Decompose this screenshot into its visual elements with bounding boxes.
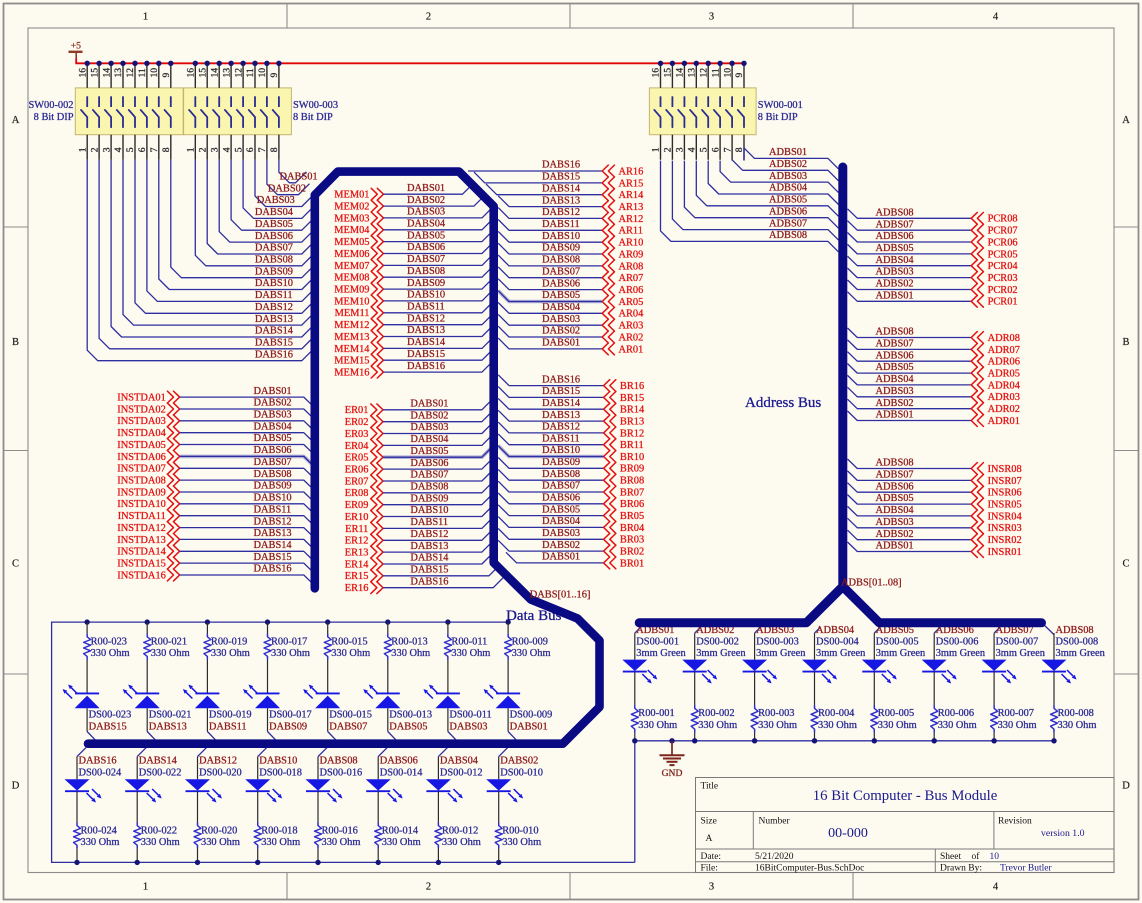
svg-text:4: 4 (687, 147, 698, 152)
svg-text:DABS04: DABS04 (254, 421, 293, 432)
svg-text:4: 4 (993, 882, 999, 893)
svg-text:ADBS01: ADBS01 (876, 410, 914, 421)
svg-text:16BitComputer-Bus.SchDoc: 16BitComputer-Bus.SchDoc (755, 863, 864, 873)
svg-text:330 Ohm: 330 Ohm (502, 837, 541, 848)
svg-text:ER11: ER11 (345, 524, 368, 535)
svg-text:R00-010: R00-010 (502, 825, 538, 836)
svg-text:DABS02: DABS02 (268, 183, 306, 194)
svg-text:INSTDA06: INSTDA06 (117, 452, 166, 463)
svg-text:DABS10: DABS10 (255, 278, 293, 289)
svg-text:DABS03: DABS03 (254, 410, 292, 421)
svg-text:AR12: AR12 (619, 214, 644, 225)
svg-text:ER04: ER04 (345, 441, 369, 452)
svg-text:ADBS01: ADBS01 (876, 290, 914, 301)
svg-text:DABS04: DABS04 (407, 219, 446, 230)
svg-text:ADR03: ADR03 (988, 392, 1020, 403)
svg-text:DABS09: DABS09 (542, 457, 580, 468)
svg-text:DS00-015: DS00-015 (329, 710, 372, 721)
svg-text:DABS11: DABS11 (254, 504, 292, 515)
svg-text:ER14: ER14 (345, 559, 369, 570)
svg-text:3mm Green: 3mm Green (876, 648, 926, 659)
svg-text:INSTDA08: INSTDA08 (117, 476, 166, 487)
svg-text:AR10: AR10 (619, 238, 644, 249)
svg-text:BR12: BR12 (620, 428, 644, 439)
svg-text:ADBS03: ADBS03 (876, 386, 914, 397)
svg-text:4: 4 (221, 147, 232, 152)
svg-text:ADBS02: ADBS02 (876, 529, 914, 540)
svg-text:ER15: ER15 (345, 571, 369, 582)
svg-text:DABS04: DABS04 (542, 302, 581, 313)
svg-text:R00-020: R00-020 (201, 825, 237, 836)
svg-text:R00-014: R00-014 (382, 825, 419, 836)
svg-text:3mm Green: 3mm Green (996, 648, 1046, 659)
svg-text:DABS13: DABS13 (149, 721, 187, 732)
svg-text:330 Ohm: 330 Ohm (91, 648, 130, 659)
svg-text:INSTDA12: INSTDA12 (117, 523, 166, 534)
svg-text:DABS05: DABS05 (254, 433, 292, 444)
svg-text:2: 2 (89, 147, 100, 152)
svg-text:12: 12 (125, 68, 136, 78)
svg-text:DABS15: DABS15 (542, 172, 580, 183)
svg-text:1: 1 (651, 147, 662, 152)
svg-text:DABS03: DABS03 (257, 195, 295, 206)
svg-text:7: 7 (722, 147, 733, 152)
svg-text:A: A (1122, 115, 1130, 126)
svg-text:PCR07: PCR07 (988, 226, 1018, 237)
svg-text:R00-017: R00-017 (271, 636, 307, 647)
svg-text:DABS10: DABS10 (254, 493, 292, 504)
svg-text:DABS02: DABS02 (500, 756, 538, 767)
svg-text:DABS11: DABS11 (407, 302, 445, 313)
svg-text:D: D (1122, 781, 1130, 792)
svg-text:DABS16: DABS16 (407, 361, 445, 372)
svg-text:R00-013: R00-013 (391, 636, 427, 647)
svg-text:PCR05: PCR05 (988, 249, 1018, 260)
svg-text:AR13: AR13 (619, 202, 644, 213)
svg-text:INSTDA10: INSTDA10 (117, 499, 166, 510)
svg-text:INSTDA16: INSTDA16 (117, 570, 166, 581)
svg-text:DABS16: DABS16 (79, 756, 117, 767)
svg-text:DABS15: DABS15 (255, 338, 293, 349)
svg-text:7: 7 (149, 147, 160, 152)
svg-text:R00-004: R00-004 (818, 708, 855, 719)
svg-text:PCR04: PCR04 (988, 261, 1019, 272)
svg-text:BR14: BR14 (620, 405, 645, 416)
svg-text:DABS15: DABS15 (542, 386, 580, 397)
svg-text:DABS07: DABS07 (410, 470, 448, 481)
svg-text:3: 3 (709, 12, 714, 23)
svg-text:330 Ohm: 330 Ohm (271, 648, 310, 659)
svg-text:DS00-002: DS00-002 (696, 637, 739, 648)
svg-text:DABS02: DABS02 (407, 195, 445, 206)
svg-text:ADBS03: ADBS03 (769, 171, 807, 182)
svg-text:ADBS05: ADBS05 (876, 493, 914, 504)
svg-text:R00-022: R00-022 (141, 825, 177, 836)
svg-text:DABS16: DABS16 (254, 564, 292, 575)
svg-text:ER12: ER12 (345, 536, 369, 547)
svg-text:DABS05: DABS05 (407, 230, 445, 241)
svg-text:11: 11 (137, 68, 148, 77)
svg-text:R00-023: R00-023 (91, 636, 127, 647)
svg-text:DABS13: DABS13 (255, 314, 293, 325)
svg-text:R00-005: R00-005 (878, 708, 914, 719)
svg-text:DABS07: DABS07 (542, 266, 580, 277)
svg-text:version 1.0: version 1.0 (1041, 828, 1085, 839)
svg-text:DS00-019: DS00-019 (209, 710, 252, 721)
svg-text:DABS14: DABS14 (542, 183, 581, 194)
svg-text:15: 15 (89, 68, 100, 78)
svg-text:DABS13: DABS13 (542, 410, 580, 421)
svg-text:330 Ohm: 330 Ohm (818, 720, 857, 731)
svg-text:BR01: BR01 (620, 558, 644, 569)
svg-text:DABS02: DABS02 (542, 326, 580, 337)
svg-text:MEM13: MEM13 (334, 332, 369, 343)
svg-text:DABS12: DABS12 (254, 516, 292, 527)
svg-text:ADBS08: ADBS08 (769, 230, 807, 241)
svg-text:DABS14: DABS14 (407, 337, 446, 348)
svg-text:DABS10: DABS10 (542, 231, 580, 242)
svg-text:DABS16: DABS16 (542, 374, 580, 385)
svg-text:DABS09: DABS09 (542, 243, 580, 254)
svg-text:DABS05: DABS05 (542, 290, 580, 301)
svg-text:DABS06: DABS06 (407, 242, 445, 253)
svg-text:BR02: BR02 (620, 547, 644, 558)
svg-text:AR11: AR11 (619, 226, 643, 237)
svg-text:AR03: AR03 (619, 321, 644, 332)
svg-text:DABS12: DABS12 (255, 302, 293, 313)
svg-text:DS00-024: DS00-024 (79, 767, 123, 778)
svg-text:ADR05: ADR05 (988, 369, 1020, 380)
svg-text:R00-008: R00-008 (1058, 708, 1094, 719)
svg-text:DABS15: DABS15 (410, 565, 448, 576)
svg-text:DABS09: DABS09 (269, 721, 307, 732)
svg-text:ADBS05: ADBS05 (876, 362, 914, 373)
svg-text:ADBS03: ADBS03 (876, 267, 914, 278)
svg-text:DABS06: DABS06 (542, 278, 580, 289)
svg-text:DS00-018: DS00-018 (259, 767, 302, 778)
svg-text:8 Bit DIP: 8 Bit DIP (293, 112, 333, 123)
svg-text:5: 5 (125, 147, 136, 152)
svg-text:1: 1 (143, 12, 148, 23)
svg-text:ADBS02: ADBS02 (769, 159, 807, 170)
svg-text:330 Ohm: 330 Ohm (638, 720, 677, 731)
svg-text:Address Bus: Address Bus (745, 395, 821, 411)
svg-text:MEM16: MEM16 (334, 368, 369, 379)
svg-text:330 Ohm: 330 Ohm (391, 648, 430, 659)
svg-text:BR16: BR16 (620, 381, 644, 392)
svg-text:INSR02: INSR02 (988, 535, 1022, 546)
svg-text:DS00-010: DS00-010 (500, 767, 543, 778)
svg-text:330 Ohm: 330 Ohm (211, 648, 250, 659)
svg-text:DABS08: DABS08 (542, 255, 580, 266)
svg-text:INSTDA07: INSTDA07 (117, 464, 166, 475)
svg-text:ADBS[01..08]: ADBS[01..08] (841, 577, 902, 588)
svg-text:330 Ohm: 330 Ohm (998, 720, 1037, 731)
svg-text:BR13: BR13 (620, 417, 644, 428)
svg-text:12: 12 (233, 68, 244, 78)
svg-text:BR10: BR10 (620, 452, 644, 463)
svg-text:SW00-003: SW00-003 (293, 100, 338, 111)
svg-text:DABS06: DABS06 (542, 493, 580, 504)
svg-text:+5: +5 (71, 41, 81, 52)
svg-text:INSR03: INSR03 (988, 523, 1022, 534)
svg-text:DS00-023: DS00-023 (89, 710, 132, 721)
svg-text:DS00-021: DS00-021 (149, 710, 192, 721)
svg-text:R00-024: R00-024 (81, 825, 118, 836)
svg-text:ER02: ER02 (345, 417, 369, 428)
svg-text:ADR02: ADR02 (988, 404, 1020, 415)
svg-text:330 Ohm: 330 Ohm (758, 720, 797, 731)
svg-text:330 Ohm: 330 Ohm (442, 837, 481, 848)
svg-text:5: 5 (698, 147, 709, 152)
svg-text:13: 13 (221, 68, 232, 78)
svg-text:MEM06: MEM06 (334, 249, 369, 260)
svg-text:Sheet: Sheet (940, 852, 961, 862)
svg-text:DABS07: DABS07 (329, 721, 367, 732)
svg-text:DABS08: DABS08 (410, 482, 448, 493)
svg-text:BR08: BR08 (620, 476, 644, 487)
svg-text:330 Ohm: 330 Ohm (698, 720, 737, 731)
svg-text:DABS16: DABS16 (542, 160, 580, 171)
svg-text:ER03: ER03 (345, 429, 369, 440)
svg-text:6: 6 (245, 147, 256, 152)
svg-text:DABS15: DABS15 (89, 721, 127, 732)
svg-text:DABS11: DABS11 (209, 721, 247, 732)
svg-text:DABS01: DABS01 (254, 386, 292, 397)
svg-text:AR14: AR14 (619, 190, 645, 201)
svg-text:ADBS04: ADBS04 (876, 374, 915, 385)
svg-text:DABS12: DABS12 (410, 529, 448, 540)
svg-text:A: A (12, 115, 20, 126)
svg-text:330 Ohm: 330 Ohm (81, 837, 120, 848)
svg-text:DS00-013: DS00-013 (389, 710, 432, 721)
svg-text:ADBS01: ADBS01 (769, 147, 807, 158)
svg-text:DABS08: DABS08 (542, 469, 580, 480)
svg-text:R00-021: R00-021 (151, 636, 187, 647)
svg-text:DS00-009: DS00-009 (510, 710, 553, 721)
svg-text:DABS16: DABS16 (255, 349, 293, 360)
svg-text:R00-011: R00-011 (451, 636, 487, 647)
svg-text:DABS13: DABS13 (254, 528, 292, 539)
svg-text:6: 6 (137, 147, 148, 152)
svg-text:DABS14: DABS14 (410, 553, 449, 564)
svg-text:DS00-008: DS00-008 (1056, 637, 1099, 648)
svg-text:11: 11 (710, 68, 721, 77)
svg-text:DS00-016: DS00-016 (320, 767, 363, 778)
svg-text:1: 1 (143, 882, 148, 893)
svg-text:INSTDA01: INSTDA01 (117, 393, 166, 404)
svg-text:10: 10 (722, 68, 733, 78)
svg-text:MEM04: MEM04 (334, 225, 370, 236)
svg-text:ADBS07: ADBS07 (876, 219, 914, 230)
svg-text:12: 12 (698, 68, 709, 78)
svg-text:330 Ohm: 330 Ohm (451, 648, 490, 659)
svg-text:DABS04: DABS04 (542, 516, 581, 527)
svg-text:DABS12: DABS12 (542, 422, 580, 433)
svg-text:DS00-020: DS00-020 (199, 767, 242, 778)
svg-text:ER13: ER13 (345, 548, 369, 559)
svg-text:DABS12: DABS12 (407, 313, 445, 324)
svg-text:R00-003: R00-003 (758, 708, 794, 719)
svg-text:DABS13: DABS13 (407, 325, 445, 336)
svg-text:9: 9 (734, 73, 745, 78)
svg-text:C: C (12, 559, 19, 570)
svg-text:DABS07: DABS07 (542, 481, 580, 492)
svg-text:330 Ohm: 330 Ohm (938, 720, 977, 731)
svg-text:DS00-017: DS00-017 (269, 710, 312, 721)
svg-text:DABS03: DABS03 (449, 721, 487, 732)
svg-text:R00-012: R00-012 (442, 825, 478, 836)
svg-text:16: 16 (186, 68, 197, 78)
svg-text:3: 3 (101, 147, 112, 152)
svg-text:ER08: ER08 (345, 488, 369, 499)
svg-text:B: B (12, 337, 19, 348)
svg-text:330 Ohm: 330 Ohm (878, 720, 917, 731)
svg-text:8 Bit DIP: 8 Bit DIP (758, 112, 798, 123)
svg-text:ADBS06: ADBS06 (876, 350, 914, 361)
svg-text:ER06: ER06 (345, 465, 369, 476)
svg-text:INSTDA14: INSTDA14 (117, 547, 166, 558)
svg-text:DABS01: DABS01 (410, 399, 448, 410)
svg-text:DABS09: DABS09 (407, 278, 445, 289)
svg-text:MEM14: MEM14 (334, 344, 370, 355)
svg-text:ADBS05: ADBS05 (876, 243, 914, 254)
svg-text:DABS14: DABS14 (542, 398, 581, 409)
svg-text:DABS04: DABS04 (255, 207, 294, 218)
svg-text:ADBS08: ADBS08 (876, 327, 914, 338)
svg-text:16: 16 (651, 68, 662, 78)
svg-text:AR15: AR15 (619, 178, 644, 189)
svg-text:R00-002: R00-002 (698, 708, 734, 719)
svg-text:4: 4 (993, 12, 999, 23)
svg-text:R00-001: R00-001 (638, 708, 674, 719)
svg-text:AR07: AR07 (619, 273, 644, 284)
svg-text:DABS10: DABS10 (410, 505, 448, 516)
svg-text:3mm Green: 3mm Green (696, 648, 746, 659)
svg-text:DS00-012: DS00-012 (440, 767, 483, 778)
svg-text:DABS07: DABS07 (254, 457, 292, 468)
svg-text:MEM09: MEM09 (334, 285, 369, 296)
svg-text:ADBS04: ADBS04 (769, 183, 808, 194)
svg-text:DABS02: DABS02 (542, 540, 580, 551)
svg-text:DABS09: DABS09 (254, 481, 292, 492)
svg-text:ADBS03: ADBS03 (876, 517, 914, 528)
svg-text:DABS[01..16]: DABS[01..16] (530, 590, 591, 601)
svg-text:INSR04: INSR04 (988, 511, 1023, 522)
svg-text:DABS06: DABS06 (410, 458, 448, 469)
svg-text:INSR08: INSR08 (988, 464, 1022, 475)
svg-text:BR03: BR03 (620, 535, 644, 546)
svg-text:9: 9 (269, 73, 280, 78)
svg-text:Title: Title (701, 782, 719, 792)
svg-text:DABS11: DABS11 (542, 219, 580, 230)
svg-text:D: D (12, 781, 20, 792)
svg-text:ER07: ER07 (345, 476, 369, 487)
svg-text:Revision: Revision (998, 817, 1032, 827)
svg-text:DABS05: DABS05 (410, 446, 448, 457)
svg-text:DS00-003: DS00-003 (756, 637, 799, 648)
svg-text:R00-016: R00-016 (322, 825, 358, 836)
svg-text:AR04: AR04 (619, 309, 645, 320)
svg-text:DABS15: DABS15 (254, 552, 292, 563)
svg-text:ADBS08: ADBS08 (1056, 625, 1094, 636)
svg-text:DABS13: DABS13 (542, 195, 580, 206)
svg-text:330 Ohm: 330 Ohm (201, 837, 240, 848)
svg-text:1: 1 (186, 147, 197, 152)
svg-text:GND: GND (662, 768, 683, 779)
svg-text:7: 7 (257, 147, 268, 152)
svg-text:3mm Green: 3mm Green (636, 648, 686, 659)
svg-text:BR07: BR07 (620, 487, 644, 498)
svg-text:BR11: BR11 (620, 440, 644, 451)
svg-text:MEM12: MEM12 (334, 320, 369, 331)
svg-text:PCR08: PCR08 (988, 214, 1018, 225)
svg-text:MEM03: MEM03 (334, 213, 369, 224)
svg-text:DABS08: DABS08 (407, 266, 445, 277)
svg-text:DABS05: DABS05 (542, 504, 580, 515)
svg-text:DABS14: DABS14 (139, 756, 178, 767)
svg-text:DABS08: DABS08 (320, 756, 358, 767)
svg-text:PCR06: PCR06 (988, 237, 1018, 248)
svg-text:A: A (706, 834, 713, 844)
svg-text:DABS02: DABS02 (410, 410, 448, 421)
svg-text:AR08: AR08 (619, 261, 644, 272)
svg-text:Drawn By:: Drawn By: (940, 863, 982, 873)
svg-text:3mm Green: 3mm Green (936, 648, 986, 659)
svg-text:14: 14 (101, 68, 112, 78)
svg-text:ADBS05: ADBS05 (769, 195, 807, 206)
svg-text:DABS08: DABS08 (254, 469, 292, 480)
svg-text:330 Ohm: 330 Ohm (1058, 720, 1097, 731)
svg-text:10: 10 (990, 852, 1000, 862)
svg-text:INSTDA05: INSTDA05 (117, 440, 166, 451)
svg-text:File:: File: (701, 863, 718, 873)
svg-text:ER01: ER01 (345, 405, 369, 416)
svg-text:DABS02: DABS02 (254, 398, 292, 409)
svg-text:R00-006: R00-006 (938, 708, 974, 719)
svg-text:330 Ohm: 330 Ohm (151, 648, 190, 659)
svg-text:BR05: BR05 (620, 511, 644, 522)
svg-text:DS00-007: DS00-007 (996, 637, 1039, 648)
svg-text:R00-019: R00-019 (211, 636, 247, 647)
svg-text:11: 11 (245, 68, 256, 77)
svg-text:R00-009: R00-009 (512, 636, 548, 647)
svg-text:ADR08: ADR08 (988, 333, 1020, 344)
svg-text:INSTDA15: INSTDA15 (117, 559, 166, 570)
svg-text:1: 1 (77, 147, 88, 152)
svg-text:MEM02: MEM02 (334, 202, 369, 213)
svg-text:INSTDA03: INSTDA03 (117, 416, 166, 427)
svg-text:DS00-004: DS00-004 (816, 637, 860, 648)
svg-text:DABS14: DABS14 (254, 540, 293, 551)
svg-text:DABS10: DABS10 (407, 290, 445, 301)
svg-text:6: 6 (710, 147, 721, 152)
svg-text:3: 3 (675, 147, 686, 152)
svg-text:DABS12: DABS12 (199, 756, 237, 767)
svg-text:ADBS01: ADBS01 (876, 541, 914, 552)
svg-text:MEM10: MEM10 (334, 296, 369, 307)
svg-text:INSTDA09: INSTDA09 (117, 487, 166, 498)
svg-text:DABS04: DABS04 (410, 434, 449, 445)
svg-text:3mm Green: 3mm Green (816, 648, 866, 659)
svg-text:330 Ohm: 330 Ohm (331, 648, 370, 659)
svg-text:SW00-001: SW00-001 (758, 100, 803, 111)
svg-text:DS00-006: DS00-006 (936, 637, 979, 648)
svg-text:AR06: AR06 (619, 285, 644, 296)
svg-text:9: 9 (161, 73, 172, 78)
svg-text:14: 14 (209, 68, 220, 78)
svg-text:5: 5 (233, 147, 244, 152)
